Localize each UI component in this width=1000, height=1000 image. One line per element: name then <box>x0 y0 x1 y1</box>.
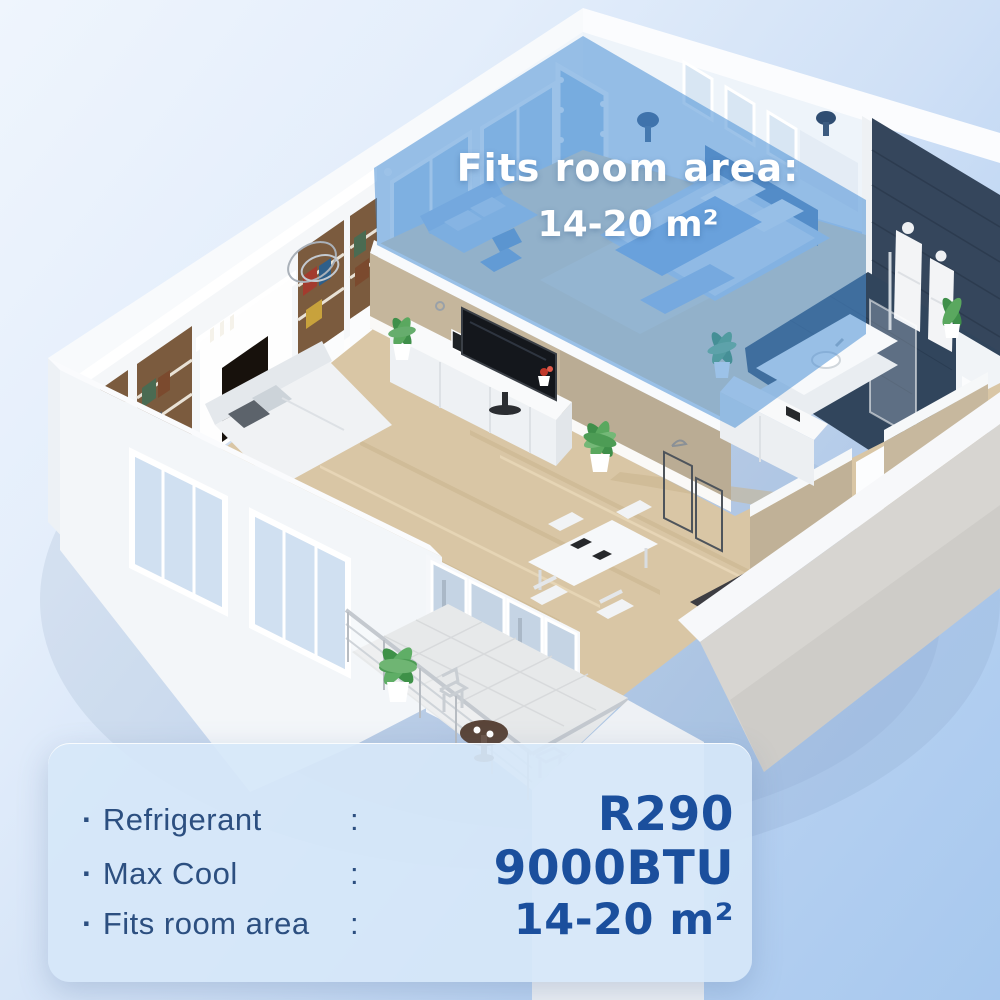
spec-label: ·Fits room area <box>82 906 350 942</box>
spec-row-max-cool: ·Max Cool : 9000BTU <box>82 841 734 895</box>
spec-colon: : <box>350 802 402 838</box>
spec-value-refrigerant: R290 <box>402 787 734 842</box>
spec-colon: : <box>350 856 402 892</box>
spec-value-max-cool: 9000BTU <box>402 841 734 896</box>
spec-label: ·Refrigerant <box>82 802 350 838</box>
bullet-icon: · <box>82 856 93 891</box>
spec-row-refrigerant: ·Refrigerant : R290 <box>82 787 734 841</box>
product-infographic: Fits room area: 14-20 m² ·Refrigerant : … <box>0 0 1000 1000</box>
spec-colon: : <box>350 906 402 942</box>
spec-row-fits-room-area: ·Fits room area : 14-20 m² <box>82 895 734 949</box>
specs-panel: ·Refrigerant : R290 ·Max Cool : 9000BTU … <box>48 743 752 982</box>
bullet-icon: · <box>82 802 93 837</box>
spec-label: ·Max Cool <box>82 856 350 892</box>
spec-value-fits-room-area: 14-20 m² <box>402 895 734 945</box>
bullet-icon: · <box>82 906 93 941</box>
